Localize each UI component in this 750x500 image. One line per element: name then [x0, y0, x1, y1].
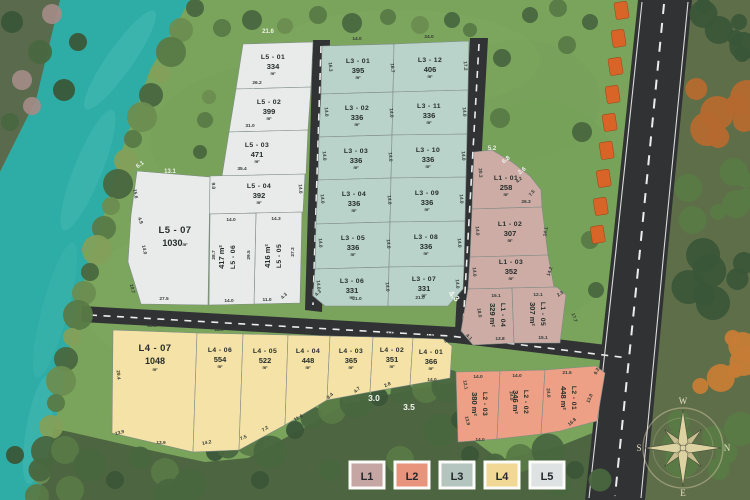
tree: [28, 40, 52, 64]
plot-area-label: 336: [423, 111, 436, 120]
dimension-label: 14.0: [315, 280, 322, 290]
compass-letter-south: S: [636, 443, 641, 453]
legend-label: L2: [406, 471, 419, 483]
plot-area-label: 448 m²: [559, 386, 568, 410]
plot-l1-03[interactable]: L1 - 03352m²: [468, 255, 554, 289]
plot-name-label: L2 - 03: [481, 392, 488, 416]
tree: [582, 14, 598, 30]
tree: [692, 378, 708, 394]
tree: [103, 169, 133, 199]
legend-label: L3: [451, 471, 464, 483]
plot-name-label: L3 - 03: [344, 148, 368, 155]
tree: [82, 235, 112, 265]
plot-area-label: 365: [345, 356, 358, 365]
plot-l5-01[interactable]: L5 - 01334m²: [236, 42, 313, 89]
dimension-label: 21.6: [262, 29, 274, 35]
dimension-label: 14.0: [226, 217, 236, 223]
tree: [12, 70, 32, 90]
compass-hub: [680, 445, 686, 451]
plot-l3-03[interactable]: L3 - 03336m²: [318, 135, 392, 180]
tree: [696, 286, 730, 320]
tree: [286, 421, 304, 439]
plot-l3-02[interactable]: L3 - 02336m²: [319, 92, 393, 137]
tree: [342, 13, 362, 33]
plot-name-label: L3 - 07: [412, 276, 436, 283]
legend-item-L1: L1: [350, 462, 384, 488]
plot-l3-10[interactable]: L3 - 10336m²: [391, 134, 467, 178]
dimension-label: 14.0: [471, 267, 478, 277]
plot-area-label: 336: [348, 199, 361, 208]
site-plan-map: L5 - 01334m²L5 - 02399m²L5 - 03471m²L5 -…: [0, 0, 750, 500]
tree: [254, 436, 287, 469]
tree: [39, 415, 63, 439]
tree: [490, 108, 510, 128]
tree: [106, 471, 124, 489]
dimension-label: 14.0: [388, 108, 395, 118]
dimension-label: 12.1: [533, 292, 543, 298]
tree: [707, 364, 735, 392]
dimension-label: 14.3: [271, 216, 281, 222]
plot-area-label: 352: [505, 267, 518, 276]
plot-unit-label: m²: [354, 122, 360, 127]
dimension-label: 27.5: [159, 296, 169, 302]
dimension-label: 15.1: [538, 335, 548, 341]
plot-unit-label: m²: [503, 192, 509, 197]
plot-area-label: 417 m²: [217, 245, 226, 269]
orange-shrub: [590, 225, 605, 244]
tree: [63, 300, 93, 330]
dimension-label: 28.7: [211, 250, 217, 260]
plot-name-label: L3 - 04: [342, 191, 366, 198]
dimension-label: 13.8: [495, 336, 505, 342]
dimension-label: 14.0: [317, 238, 324, 248]
compass-letter-west: W: [679, 396, 688, 406]
plot-area-label: 334: [267, 62, 280, 71]
plot-shape[interactable]: [497, 370, 545, 439]
tree: [731, 14, 747, 30]
plot-name-label: L3 - 02: [345, 105, 369, 112]
plot-name-label: L4 - 05: [253, 348, 277, 355]
dimension-label: 14.0: [321, 151, 328, 161]
tree: [81, 263, 99, 281]
plot-area-label: 331: [346, 286, 359, 295]
legend-item-L4: L4: [485, 462, 519, 488]
tree: [588, 282, 604, 298]
dimension-label: 14.0: [385, 239, 392, 249]
dimension-label: 26.3: [521, 199, 531, 205]
dimension-label: 27.3: [290, 247, 296, 257]
tree: [309, 6, 327, 24]
tree: [213, 19, 231, 37]
tree: [493, 49, 511, 67]
dimension-label: 14.0: [297, 184, 304, 194]
plot-unit-label: m²: [389, 364, 395, 369]
plot-area-label: 331: [418, 284, 431, 293]
dimension-label: 14.0: [302, 329, 312, 335]
plot-area-label: 329 m²: [488, 303, 497, 327]
plot-name-label: L3 - 11: [417, 103, 441, 110]
plot-unit-label: m²: [266, 116, 272, 121]
plot-area-label: 336: [422, 155, 435, 164]
plot-unit-label: m²: [507, 238, 513, 243]
tree: [129, 447, 152, 470]
plot-name-label: L5 - 04: [247, 183, 271, 190]
plot-area-label: 307: [504, 229, 517, 238]
plot-unit-label: m²: [353, 165, 359, 170]
dimension-label: 14.0: [474, 226, 481, 236]
dimension-label: 14.0: [346, 330, 356, 336]
plot-area-label: 336: [421, 198, 434, 207]
tree: [380, 9, 396, 25]
tree: [53, 79, 75, 101]
plot-area-label: 471: [251, 150, 264, 159]
dimension-label: 14.0: [323, 107, 330, 117]
tree: [193, 145, 207, 159]
tree: [46, 366, 76, 396]
plot-name-label: L3 - 05: [341, 235, 365, 242]
tree: [63, 328, 81, 346]
tree: [1, 113, 19, 131]
legend: L1L2L3L4L5: [350, 462, 564, 488]
legend-label: L5: [541, 471, 554, 483]
plot-l5-07[interactable]: L5 - 071030m²: [128, 171, 210, 305]
plot-area-label: 336: [350, 156, 363, 165]
dimension-label: 14.0: [214, 327, 224, 333]
dimension-label: 31.0: [245, 123, 255, 129]
orange-shrub: [611, 29, 626, 48]
plot-l5-05[interactable]: L5 - 05416 m²: [254, 212, 302, 304]
plot-area-label: 336: [347, 243, 360, 252]
dimension-label: 14.0: [512, 373, 522, 379]
dimension-label: 24.0: [545, 388, 552, 398]
tree: [319, 459, 342, 482]
tree: [242, 10, 262, 30]
plot-area-label: 380 m²: [470, 392, 479, 416]
dimension-label: 17.2: [462, 61, 469, 71]
dimension-label: 13.1: [164, 169, 176, 175]
plot-name-label: L4 - 03: [339, 348, 363, 355]
legend-label: L4: [496, 471, 510, 483]
plot-name-label: L5 - 01: [261, 54, 285, 61]
tree: [444, 12, 460, 28]
tree: [42, 4, 62, 24]
tree: [47, 394, 65, 412]
legend-item-L3: L3: [440, 462, 474, 488]
dimension-label: 9.0: [210, 182, 217, 189]
tree: [127, 102, 157, 132]
plot-l3-09[interactable]: L3 - 09336m²: [390, 177, 466, 222]
plot-name-label: L5 - 06: [230, 245, 237, 269]
plot-name-label: L5 - 02: [257, 99, 281, 106]
tree: [124, 130, 142, 148]
plot-l2-02[interactable]: L2 - 02346 m²: [497, 370, 545, 439]
tree: [197, 112, 213, 128]
plot-name-label: L3 - 12: [418, 57, 442, 64]
dimension-label: 14.0: [427, 377, 437, 383]
dimension-label: 16.3: [327, 62, 334, 72]
tree: [726, 268, 748, 290]
plot-area-label: 554: [214, 355, 227, 364]
plot-unit-label: m²: [305, 365, 311, 370]
legend-label: L1: [361, 471, 374, 483]
plot-l4-06[interactable]: L4 - 06554m²: [193, 333, 243, 452]
plot-unit-label: m²: [270, 71, 276, 76]
dimension-label: 11.0: [424, 332, 433, 338]
plot-name-label: L1 - 03: [499, 259, 523, 266]
orange-shrub: [602, 113, 617, 132]
tree: [23, 97, 41, 115]
plot-area-label: 392: [253, 191, 266, 200]
plot-unit-label: m²: [426, 120, 432, 125]
tree: [152, 65, 170, 83]
dimension-label: 15.1: [491, 293, 501, 299]
tree: [102, 197, 120, 215]
dimension-label: 14.0: [319, 194, 326, 204]
tree: [678, 206, 706, 234]
plot-unit-label: m²: [348, 365, 354, 370]
plot-unit-label: m²: [152, 367, 158, 372]
plot-area-label: 351: [386, 355, 399, 364]
plot-name-label: L4 - 07: [139, 343, 172, 354]
site-plan-canvas: L5 - 01334m²L5 - 02399m²L5 - 03471m²L5 -…: [0, 0, 750, 500]
dimension-label: 13.9: [156, 440, 166, 446]
plot-unit-label: m²: [256, 200, 262, 205]
plot-unit-label: m²: [427, 74, 433, 79]
dimension-label: 26.2: [252, 80, 262, 86]
plot-name-label: L1 - 02: [498, 221, 522, 228]
dimension-label: 21.0: [415, 295, 425, 301]
plot-name-label: L3 - 09: [415, 190, 439, 197]
dimension-label: 14.0: [387, 152, 394, 162]
tree: [156, 37, 186, 67]
legend-item-L5: L5: [530, 462, 564, 488]
dimension-label: 11.0: [262, 297, 271, 303]
plot-unit-label: m²: [423, 251, 429, 256]
plot-area-label: 258: [500, 183, 513, 192]
tree: [674, 174, 702, 202]
plot-area-label: 336: [420, 242, 433, 251]
plot-l3-04[interactable]: L3 - 04336m²: [316, 178, 391, 224]
dimension-label: 14.0: [475, 437, 485, 443]
plot-name-label: L4 - 04: [296, 348, 320, 355]
dimension-label: 14.0: [461, 107, 468, 117]
tree: [522, 7, 538, 23]
dimension-label: 3.5: [403, 402, 415, 412]
compass-letter-north: N: [724, 443, 731, 453]
plot-area-label: 399: [263, 107, 276, 116]
plot-unit-label: m²: [254, 159, 260, 164]
plot-l4-03[interactable]: L4 - 03365m²: [327, 336, 373, 400]
dimension-label: 14.0: [259, 328, 269, 334]
plot-name-label: L3 - 08: [414, 234, 438, 241]
orange-shrub: [614, 1, 629, 20]
plot-area-label: 448: [302, 356, 315, 365]
dimension-label: 21.0: [352, 296, 362, 302]
plot-l3-05[interactable]: L3 - 05336m²: [315, 222, 390, 269]
plot-l5-03[interactable]: L5 - 03471m²: [222, 130, 308, 176]
plot-area-label: 395: [352, 66, 365, 75]
dimension-label: 3.0: [368, 393, 380, 403]
plot-area-label: 336: [351, 113, 364, 122]
dimension-label: 24.0: [424, 34, 434, 40]
dimension-label: 14.0: [460, 151, 467, 161]
plot-name-label: L4 - 01: [419, 349, 443, 356]
dimension-label: 14.0: [386, 195, 393, 205]
dimension-label: 14.0: [456, 238, 463, 248]
tree: [572, 122, 592, 142]
tree: [411, 16, 429, 34]
dimension-label: 29.5: [246, 250, 252, 260]
plot-l5-02[interactable]: L5 - 02399m²: [229, 87, 311, 132]
orange-shrub: [599, 141, 614, 160]
plot-unit-label: m²: [424, 207, 430, 212]
tree: [558, 36, 576, 54]
plot-l3-11[interactable]: L3 - 11336m²: [392, 90, 468, 135]
plot-name-label: L3 - 06: [340, 278, 364, 285]
tree: [710, 204, 726, 220]
dimension-label: 14.0: [454, 279, 461, 289]
compass-letter-east: E: [680, 488, 686, 498]
plot-l3-06[interactable]: L3 - 06331m²: [313, 267, 389, 306]
plot-area-label: 406: [424, 65, 437, 74]
tree: [29, 459, 52, 482]
plot-l5-04[interactable]: L5 - 04392m²: [208, 174, 305, 214]
orange-shrub: [596, 169, 611, 188]
orange-shrub: [605, 85, 620, 104]
tree: [69, 33, 87, 51]
tree: [722, 190, 750, 218]
plot-l4-02[interactable]: L4 - 02351m²: [370, 337, 413, 392]
dimension-label: 21.5: [562, 370, 572, 376]
plot-shape[interactable]: [222, 130, 308, 176]
plot-unit-label: m²: [351, 208, 357, 213]
tree: [685, 78, 707, 100]
dimension-label: 16.7: [389, 63, 396, 73]
tree: [566, 461, 584, 479]
plot-unit-label: m²: [428, 366, 434, 371]
dimension-label: 14.0: [473, 374, 483, 380]
plot-unit-label: m²: [425, 164, 431, 169]
plot-area-label: 1048: [145, 356, 165, 366]
dimension-label: 20.3: [477, 168, 484, 178]
plot-name-label: L1 - 04: [499, 303, 506, 327]
tree: [251, 471, 269, 489]
plot-name-label: L3 - 10: [416, 147, 440, 154]
plot-l3-12[interactable]: L3 - 12406m²: [393, 41, 469, 92]
dimension-label: 29.4: [115, 370, 122, 380]
plot-area-label: 416 m²: [263, 244, 272, 268]
tree: [6, 446, 24, 464]
plot-name-label: L2 - 01: [570, 386, 577, 410]
dimension-label: 14.0: [387, 331, 397, 337]
dimension-label: 35.4: [237, 166, 247, 172]
plot-name-label: L3 - 01: [346, 58, 370, 65]
tree: [463, 23, 477, 37]
plot-area-label: 366: [425, 357, 438, 366]
plot-name-label: L5 - 05: [276, 244, 283, 268]
plot-name-label: L4 - 02: [380, 347, 404, 354]
dimension-label: 14.0: [352, 36, 362, 42]
dimension-label: 14.0: [384, 282, 391, 292]
plot-name-label: L1 - 05: [539, 302, 546, 326]
tree: [277, 18, 293, 34]
plot-l3-08[interactable]: L3 - 08336m²: [389, 221, 465, 267]
plot-name-label: L5 - 07: [159, 225, 192, 236]
tree: [1, 11, 23, 33]
plot-unit-label: m²: [262, 365, 268, 370]
legend-item-L2: L2: [395, 462, 429, 488]
tree: [707, 126, 729, 148]
plot-area-label: 307 m²: [528, 302, 537, 326]
dimension-label: 5.2: [488, 146, 497, 152]
plot-name-label: L5 - 03: [245, 142, 269, 149]
plot-unit-label: m²: [217, 364, 223, 369]
tree: [589, 469, 612, 492]
plot-unit-label: m²: [355, 75, 361, 80]
dimension-label: 14.0: [458, 194, 465, 204]
tree: [202, 90, 216, 104]
plot-unit-label: m²: [508, 276, 514, 281]
plot-l1-02[interactable]: L1 - 02307m²: [470, 207, 548, 257]
dimension-label: 23.5: [147, 323, 157, 329]
tree: [74, 449, 107, 482]
orange-shrub: [608, 57, 623, 76]
plot-unit-label: m²: [350, 252, 356, 257]
plot-area-label: 522: [259, 356, 272, 365]
plot-name-label: L4 - 06: [208, 347, 232, 354]
plot-name-label: L2 - 02: [522, 390, 529, 414]
dimension-label: 14.0: [224, 298, 234, 304]
dimension-label: 24.0: [508, 391, 515, 401]
tree: [734, 46, 750, 62]
orange-shrub: [593, 197, 608, 216]
